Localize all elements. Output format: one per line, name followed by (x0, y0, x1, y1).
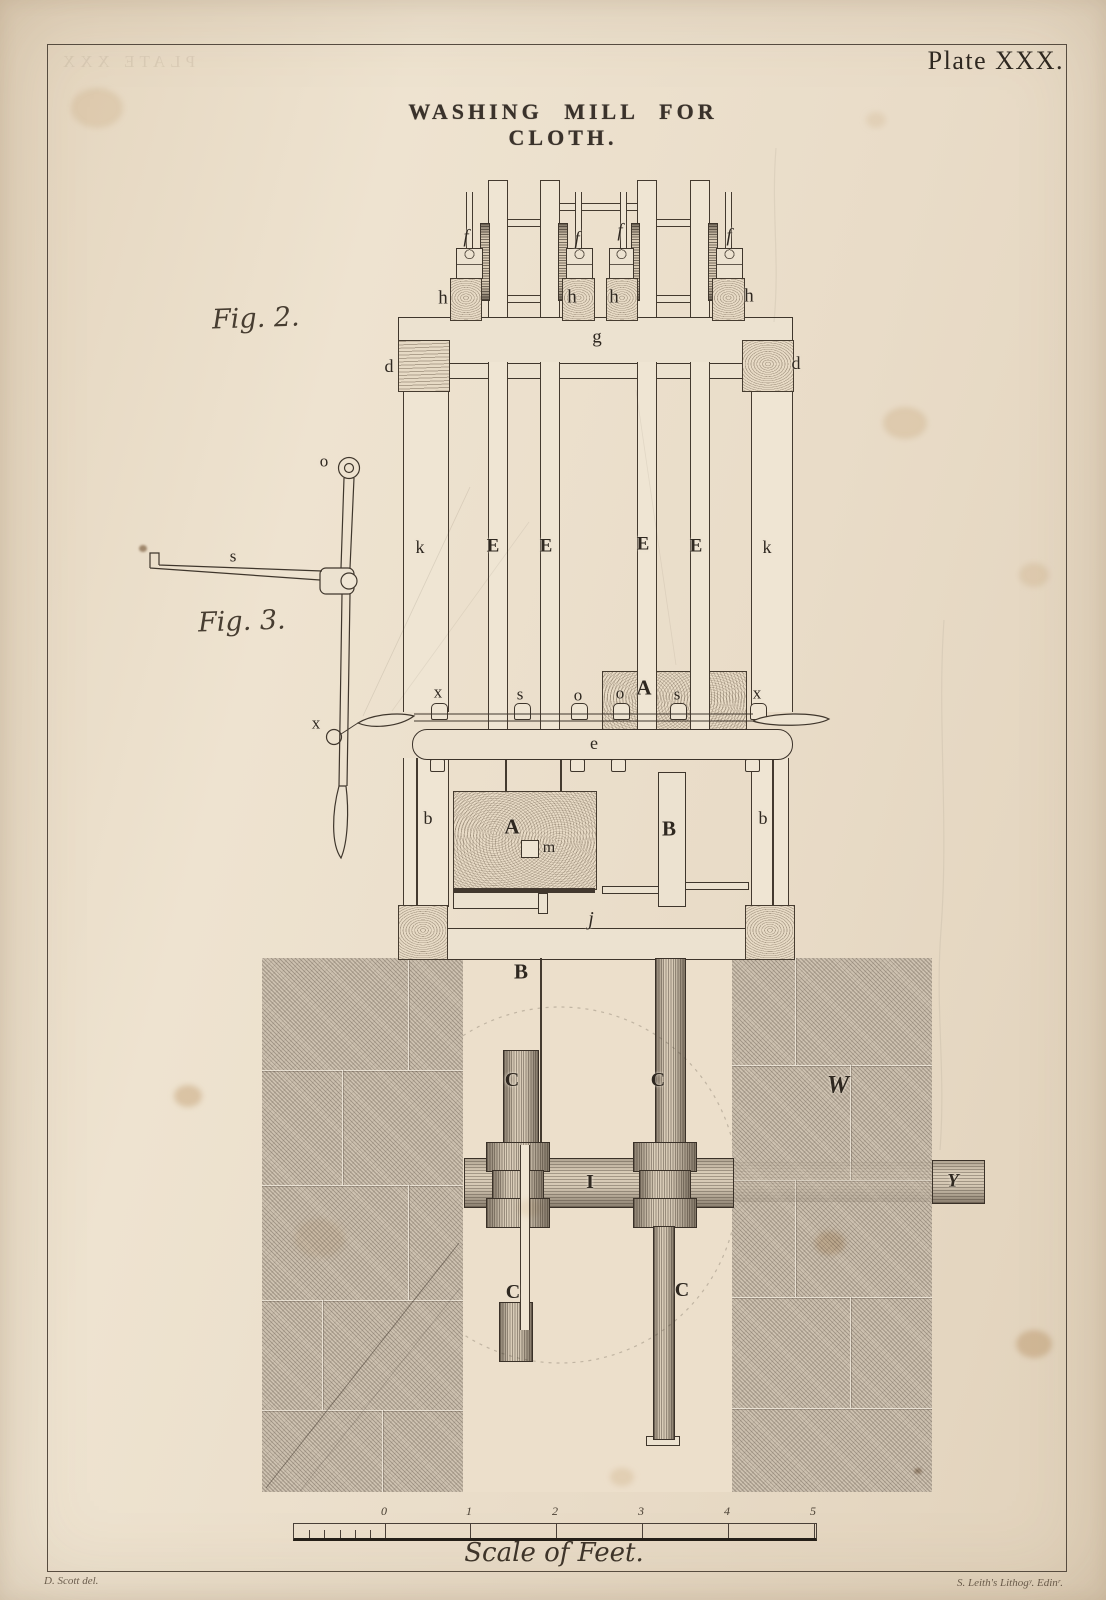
part-label-m: m (543, 840, 555, 856)
trough-side-b (403, 758, 449, 907)
part-label-h: h (567, 288, 577, 307)
scale-tick-label: 5 (810, 1504, 816, 1519)
trough-side-b (751, 758, 789, 907)
scale-subtick (309, 1530, 310, 1538)
rod-clamp (750, 703, 767, 720)
masonry-joint (262, 1300, 463, 1301)
part-label-h: h (744, 287, 754, 306)
press-post (540, 180, 560, 318)
part-label-g: g (592, 328, 602, 347)
scale-subtick (340, 1530, 341, 1538)
page-title: WASHING MILL FOR CLOTH. (363, 99, 763, 151)
trough-ledge (602, 886, 661, 894)
part-label-d: d (385, 357, 394, 375)
plate-number: Plate XXX. (928, 46, 1064, 76)
rod-clamp (514, 703, 531, 720)
scale-subtick (370, 1530, 371, 1538)
part-label-d: d (792, 354, 801, 372)
floor-corner-wood (745, 905, 795, 960)
part-label-f: f (617, 222, 622, 241)
wood-block-h (712, 278, 745, 321)
drum-barrel (639, 1170, 691, 1200)
masonry-joint (408, 958, 409, 1070)
rod-clamp (571, 703, 588, 720)
trough-side-line (772, 758, 774, 907)
wood-block-h (450, 278, 482, 321)
pawl-bracket (566, 248, 593, 279)
masonry-joint (850, 1297, 851, 1408)
part-label-W: W (827, 1073, 849, 1098)
part-label-C: C (675, 1280, 689, 1300)
part-label-s: s (674, 686, 681, 703)
part-label-B: B (514, 962, 528, 983)
part-label-h: h (609, 288, 619, 307)
sole-plate (453, 888, 595, 893)
masonry-joint (408, 1185, 409, 1300)
rod-clamp (670, 703, 687, 720)
part-label-x: x (753, 685, 762, 702)
stock-shaft-C-upper-left (503, 1050, 539, 1147)
post-crossbar (655, 219, 690, 227)
rod-clamp (431, 703, 448, 720)
ghost-plate-text: PLATE XXX (58, 52, 195, 72)
floor-corner-wood (398, 905, 448, 960)
pawl-bracket (716, 248, 743, 279)
scale-tick-label: 3 (638, 1504, 644, 1519)
trough-ledge (684, 882, 749, 890)
masonry-joint (382, 1410, 383, 1492)
part-label-k: k (763, 538, 772, 556)
masonry-joint (262, 1185, 463, 1186)
drum-flange (633, 1198, 697, 1228)
rod-clamp (613, 703, 630, 720)
press-post (488, 180, 508, 318)
part-label-C: C (506, 1282, 520, 1302)
post-crossbar (506, 219, 540, 227)
axle-through-wall (732, 1162, 932, 1202)
part-label-f: f (726, 227, 731, 246)
mortise-m (521, 840, 539, 858)
part-label-E: E (487, 537, 500, 556)
part-label-j: j (588, 909, 594, 929)
drum-barrel (492, 1170, 544, 1200)
stock-rod-C-lower-right (653, 1226, 675, 1440)
scale-tick-label: 0 (381, 1504, 387, 1519)
drum-flange (486, 1142, 550, 1172)
press-post (690, 180, 710, 318)
frame-column-k (403, 362, 449, 712)
part-label-b: b (759, 809, 768, 827)
scale-caption: Scale of Feet. (404, 1538, 704, 1568)
bar-bolt (430, 759, 445, 772)
pawl-bracket (609, 248, 634, 279)
post-crossbar (655, 295, 690, 303)
masonry-joint (262, 1410, 463, 1411)
part-label-f: f (574, 230, 579, 249)
part-label-A: A (636, 678, 651, 699)
masonry-joint (342, 1070, 343, 1185)
trough-side-line (416, 758, 418, 907)
pawl-bracket (456, 248, 483, 279)
fig2-caption: Fig. 2. (211, 301, 300, 335)
press-post (637, 180, 657, 318)
scale-tick-label: 1 (466, 1504, 472, 1519)
part-label-Y: Y (947, 1172, 959, 1191)
lithographer-credit: S. Leith's Lithogʸ. Edinʳ. (957, 1577, 1063, 1589)
part-label-s: s (230, 548, 237, 565)
masonry-joint (732, 1065, 932, 1066)
scale-tick (556, 1524, 557, 1538)
part-label-b: b (424, 809, 433, 827)
part-label-o: o (320, 453, 329, 470)
scale-tick-label: 4 (724, 1504, 730, 1519)
part-label-o: o (616, 685, 625, 702)
scale-tick (728, 1524, 729, 1538)
scale-subtick (324, 1530, 325, 1538)
press-link-rod (505, 758, 507, 792)
sole-step (453, 893, 543, 909)
scale-tick (642, 1524, 643, 1538)
masonry-wall-right (732, 958, 932, 1492)
masonry-joint (322, 1300, 323, 1410)
part-label-x: x (312, 715, 321, 732)
masonry-joint (732, 1297, 932, 1298)
part-label-k: k (416, 538, 425, 556)
scale-tick (385, 1524, 386, 1538)
part-label-E: E (637, 535, 650, 554)
fig3-caption: Fig. 3. (197, 604, 286, 638)
part-label-x: x (434, 684, 443, 701)
masonry-wall-left (262, 958, 463, 1492)
scale-subtick (355, 1530, 356, 1538)
lifting-bar-e (412, 729, 793, 760)
scale-tick (470, 1524, 471, 1538)
part-label-B: B (662, 819, 676, 840)
part-label-f: f (463, 228, 468, 247)
part-label-I: I (586, 1172, 594, 1192)
drum-flange (633, 1142, 697, 1172)
part-label-s: s (517, 686, 524, 703)
part-label-e: e (590, 734, 598, 752)
bar-bolt (570, 759, 585, 772)
artist-credit: D. Scott del. (44, 1575, 98, 1587)
wood-block-d (398, 340, 450, 392)
part-label-C: C (651, 1070, 665, 1090)
part-label-h: h (438, 289, 448, 308)
sole-tab (538, 893, 548, 914)
scale-tick-label: 2 (552, 1504, 558, 1519)
drum-flange (486, 1198, 550, 1228)
plate-sheet: PLATE XXX Plate XXX. WASHING MILL FOR CL… (0, 0, 1106, 1600)
masonry-joint (262, 1070, 463, 1071)
trough-floor-j (398, 928, 795, 960)
masonry-joint (732, 1408, 932, 1409)
part-label-C: C (505, 1070, 519, 1090)
part-label-E: E (540, 537, 553, 556)
wood-block-d (742, 340, 794, 392)
frame-column-k (751, 362, 793, 712)
press-link-rod (560, 758, 562, 792)
part-label-o: o (574, 687, 583, 704)
scale-tick (814, 1524, 815, 1538)
bar-bolt (745, 759, 760, 772)
bar-bolt (611, 759, 626, 772)
part-label-A: A (504, 817, 519, 838)
tappet-rod-left (520, 1145, 530, 1330)
part-label-E: E (690, 537, 703, 556)
post-crossbar (506, 295, 540, 303)
masonry-joint (795, 958, 796, 1065)
